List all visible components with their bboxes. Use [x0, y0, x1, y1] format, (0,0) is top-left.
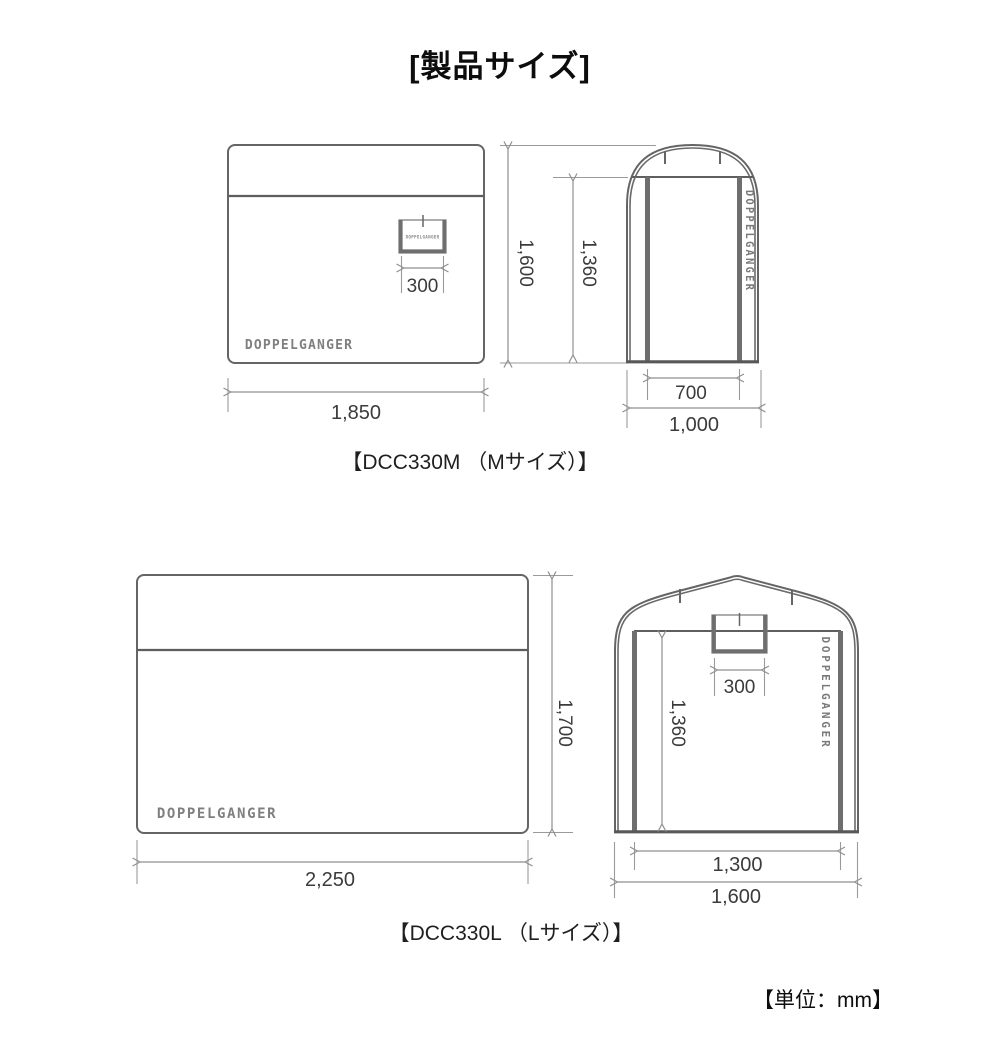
m-side-width-value: 1,850	[331, 402, 381, 424]
dcc330l-diagram: DOPPELGANGER 2,250 1,700 DOPPELGANGER	[118, 558, 880, 910]
l-front-brand-logo: DOPPELGANGER	[819, 636, 832, 749]
m-caption: 【DCC330M （Mサイズ）】	[341, 446, 598, 476]
m-front-width-value: 1,000	[669, 414, 719, 436]
dcc330m-diagram: DOPPELGANGER DOPPELGANGER 300 1,850 1,60…	[215, 130, 785, 442]
m-side-view: DOPPELGANGER DOPPELGANGER	[228, 145, 484, 363]
l-front-window	[712, 613, 767, 653]
l-side-brand-logo: DOPPELGANGER	[157, 806, 277, 822]
m-side-brand-logo: DOPPELGANGER	[245, 338, 353, 353]
l-front-width-value: 1,600	[711, 886, 761, 908]
l-window-width-value: 300	[724, 677, 756, 698]
m-front-brand-logo: DOPPELGANGER	[743, 190, 755, 292]
l-door-width-value: 1,300	[712, 854, 762, 876]
m-window-brand-logo: DOPPELGANGER	[406, 235, 440, 240]
m-window-width-value: 300	[407, 276, 439, 297]
l-caption: 【DCC330L （Lサイズ）】	[389, 917, 634, 947]
l-front-view: DOPPELGANGER	[614, 576, 859, 833]
page-title: [製品サイズ]	[0, 41, 1000, 86]
l-side-width-value: 2,250	[305, 869, 355, 891]
m-front-view: DOPPELGANGER	[626, 145, 759, 363]
m-height-value: 1,600	[515, 239, 536, 287]
product-size-sheet: { "title": "[製品サイズ]", "unit_note": "【単位：…	[0, 0, 1000, 1058]
l-inner-height-value: 1,360	[667, 699, 688, 747]
m-inner-height-value: 1,360	[578, 239, 599, 287]
l-side-dimensions: 2,250 1,700	[137, 576, 575, 892]
m-front-dimensions: 700 1,000	[627, 369, 761, 436]
l-side-view: DOPPELGANGER	[137, 575, 528, 833]
m-side-dimensions: 300 1,850 1,600 1,360	[228, 146, 656, 425]
l-height-value: 1,700	[554, 699, 575, 747]
m-door-width-value: 700	[675, 383, 707, 404]
unit-note: 【単位：mm】	[753, 984, 893, 1014]
m-side-window: DOPPELGANGER	[399, 215, 446, 253]
